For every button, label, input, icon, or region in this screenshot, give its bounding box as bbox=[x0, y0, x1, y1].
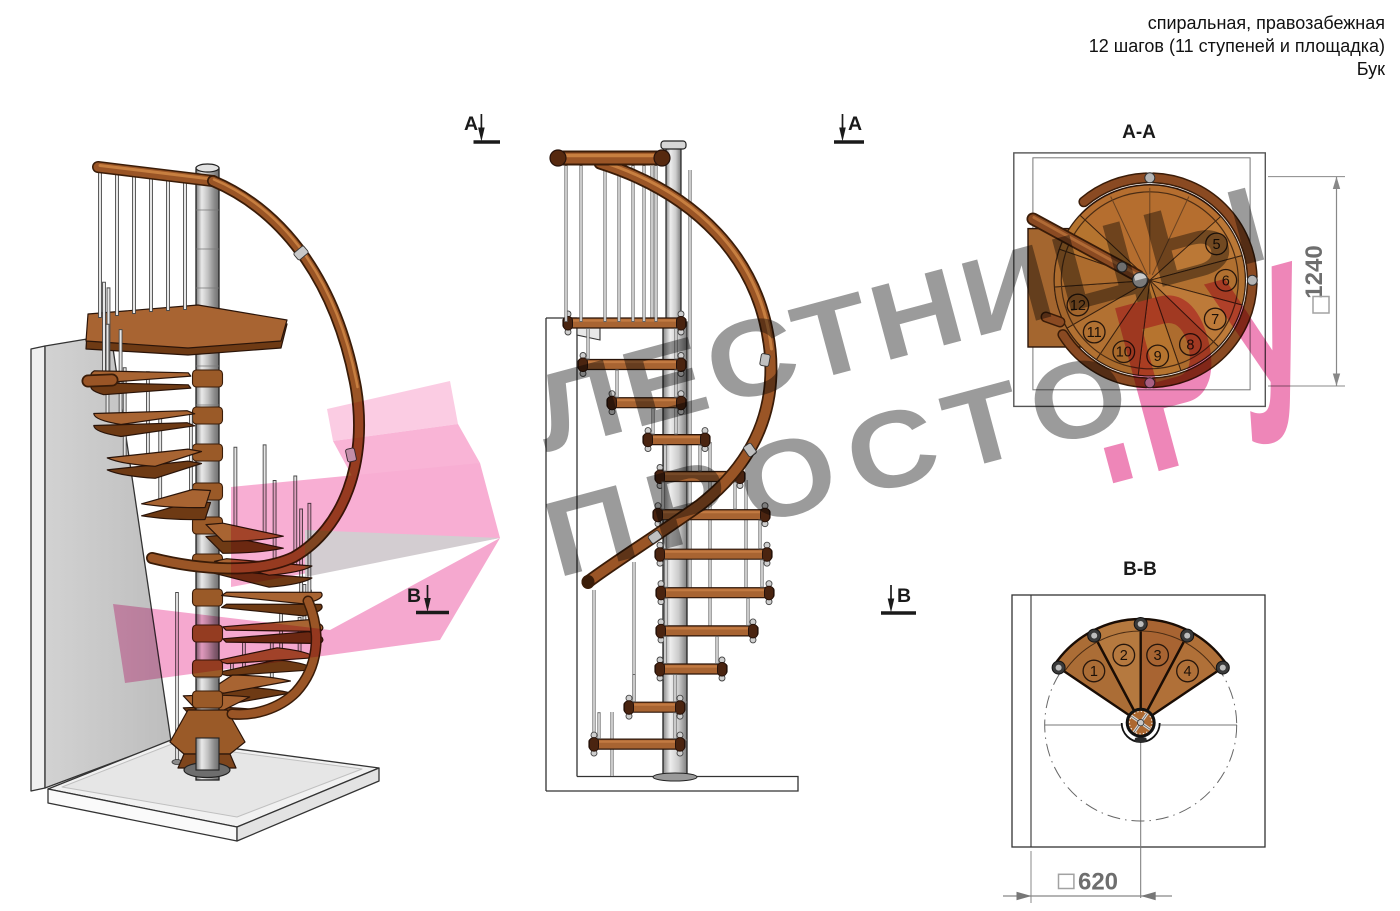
svg-text:2: 2 bbox=[1120, 648, 1128, 664]
svg-text:B: B bbox=[897, 585, 911, 607]
svg-text:B-B: B-B bbox=[1123, 559, 1157, 580]
svg-text:3: 3 bbox=[1154, 648, 1162, 664]
svg-text:12 шагов (11 ступеней и площад: 12 шагов (11 ступеней и площадка) bbox=[1089, 36, 1385, 56]
svg-text:Бук: Бук bbox=[1357, 59, 1385, 79]
svg-text:1: 1 bbox=[1090, 664, 1098, 680]
svg-text:B: B bbox=[407, 585, 421, 607]
svg-text:спиральная, правозабежная: спиральная, правозабежная bbox=[1148, 13, 1385, 33]
svg-text:620: 620 bbox=[1078, 869, 1118, 896]
svg-text:4: 4 bbox=[1183, 664, 1191, 680]
svg-text:A-A: A-A bbox=[1122, 122, 1156, 143]
svg-text:A: A bbox=[848, 113, 862, 135]
svg-text:A: A bbox=[464, 113, 478, 135]
